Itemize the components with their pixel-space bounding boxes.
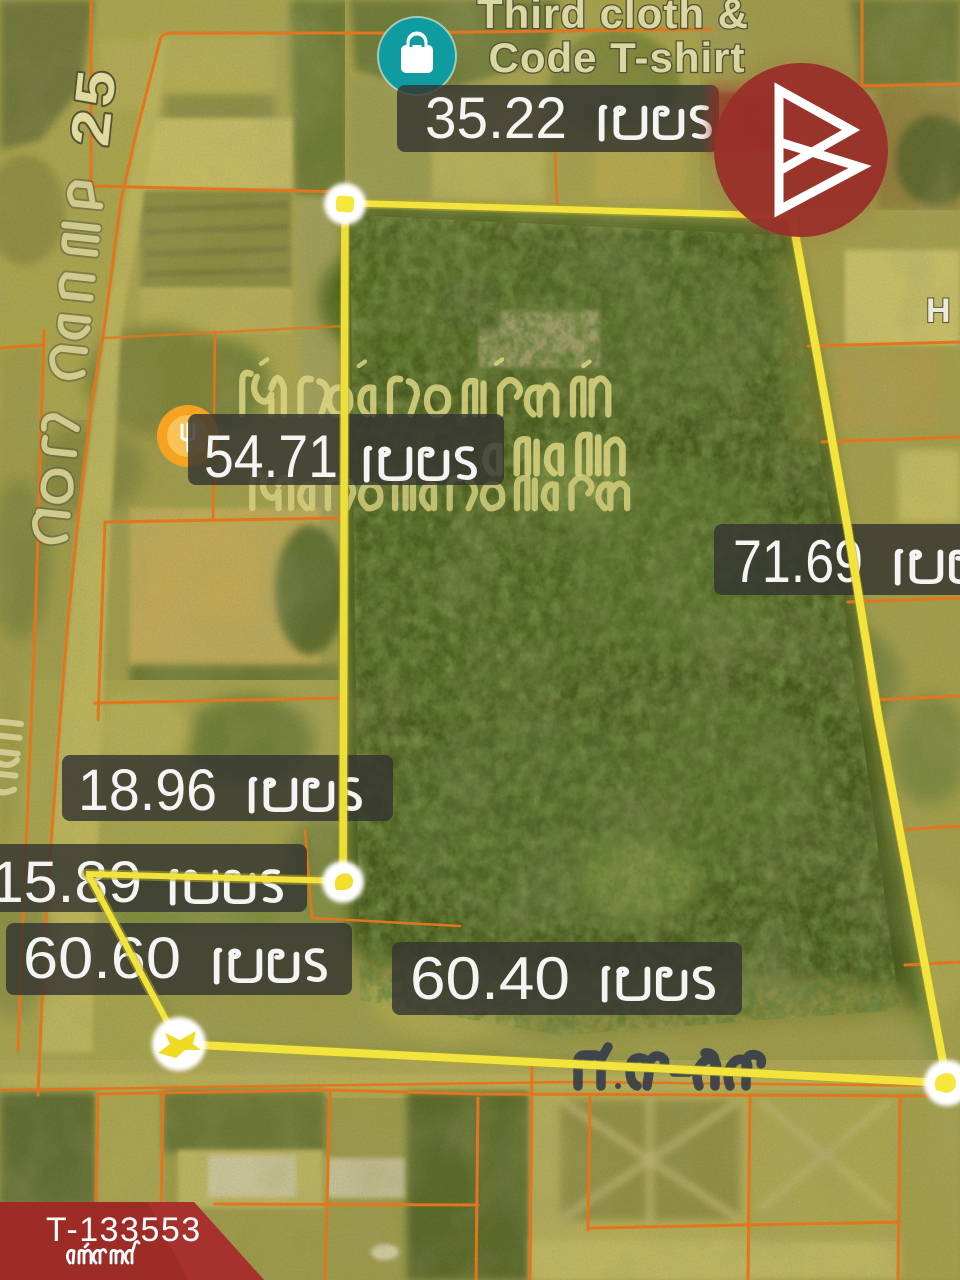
svg-text:60.60: 60.60 — [23, 926, 181, 991]
svg-text:15.89: 15.89 — [0, 850, 142, 915]
svg-text:35.22: 35.22 — [425, 86, 567, 151]
svg-text:Code T-shirt: Code T-shirt — [488, 34, 745, 81]
svg-text:T-133553: T-133553 — [46, 1211, 202, 1249]
svg-text:18.96: 18.96 — [78, 758, 217, 823]
svg-text:54.71: 54.71 — [204, 423, 338, 490]
svg-text:H: H — [926, 292, 951, 330]
svg-text:25: 25 — [59, 63, 128, 149]
svg-text:Third cloth &: Third cloth & — [477, 0, 749, 37]
svg-text:60.40: 60.40 — [410, 945, 570, 1012]
svg-text:71.69: 71.69 — [733, 528, 863, 595]
